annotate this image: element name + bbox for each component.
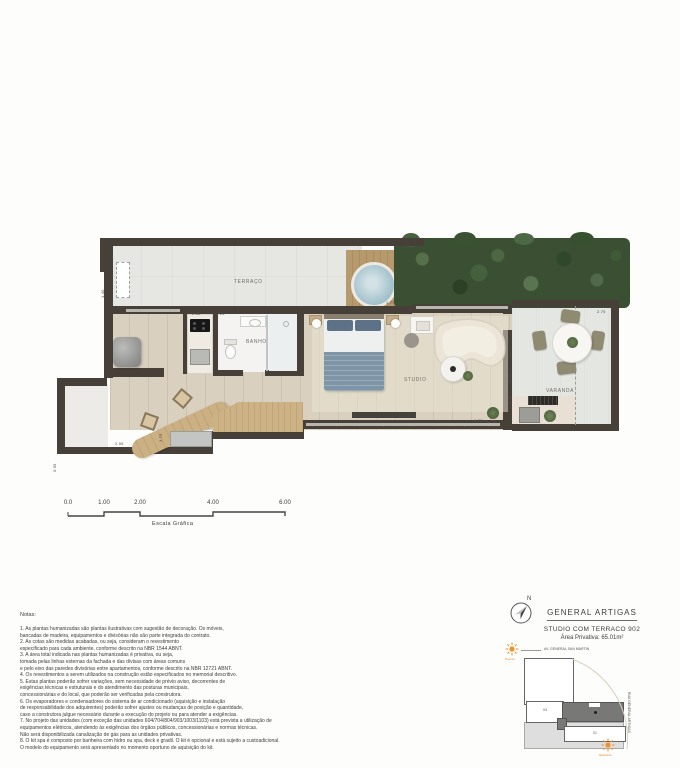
street-right-label: RUA GENERAL ARTIGAS <box>627 692 631 733</box>
scale-bar-label: Escala Gráfica <box>152 521 193 527</box>
bed <box>324 319 384 391</box>
wall-nook-bottom <box>57 447 105 454</box>
sun-west-label: Poente <box>505 657 515 661</box>
side-nook-floor <box>63 384 108 450</box>
dim-bar: 2.59 <box>115 441 124 446</box>
dining-table <box>552 323 592 363</box>
note-line: 6. Os evaporadores e condensadores do si… <box>20 699 365 706</box>
equipment-pad <box>170 431 212 447</box>
coffee-table <box>440 356 466 382</box>
dim-kitchen: 2.65 <box>192 311 201 316</box>
bed-blanket <box>324 352 384 391</box>
sun-east-icon <box>601 738 615 752</box>
kitchen-sink <box>190 349 210 365</box>
dim-nook: 0.95 <box>52 463 57 472</box>
notes-heading: Notas: <box>20 612 365 618</box>
note-line: especificado para cada ambiente, conform… <box>20 646 365 653</box>
pointer-line <box>521 650 541 651</box>
dim-balcony: 2.75 <box>597 309 606 314</box>
wall-sconce <box>391 319 400 328</box>
note-line: 4. Os revestimentos a serem utilizados n… <box>20 672 365 679</box>
wall-kitchen-bath <box>213 314 218 374</box>
keymap-arc <box>524 658 628 750</box>
title-block: GENERAL ARTIGAS STUDIO COM TERRACO 902 Á… <box>522 602 662 641</box>
grill <box>528 396 558 405</box>
note-line: O modelo do equipamento será apresentado… <box>20 745 365 752</box>
wall-balcony-bottom <box>512 424 619 431</box>
note-line: 1. As plantas humanizadas são plantas il… <box>20 626 365 633</box>
table-centerpiece <box>567 337 578 348</box>
water-heater <box>113 337 141 367</box>
note-line: 2. As cotas são medidas acabadas, ou sej… <box>20 639 365 646</box>
pouf <box>404 333 419 348</box>
wall-balcony-right <box>611 300 619 431</box>
window-glazing <box>306 423 500 426</box>
window-glazing <box>416 306 508 309</box>
notes-block: Notas: 1. As plantas humanizadas são pla… <box>20 612 365 751</box>
wall-nook-left <box>57 378 65 454</box>
hedge-blob <box>514 233 534 245</box>
dim-deck: 3.79 <box>158 433 163 442</box>
room-label-balcony: VARANDA <box>546 388 574 394</box>
plant <box>544 410 556 422</box>
wall-utility <box>104 368 164 377</box>
hedge-planting <box>394 238 630 308</box>
wall-bath-right <box>297 314 304 374</box>
terrace-floor <box>110 246 362 308</box>
dim-bath: 2.24 <box>216 311 225 316</box>
hedge-blob <box>454 232 476 246</box>
street-top-label: AV. GENERAL SAN MARTIN <box>544 647 589 651</box>
project-title: GENERAL ARTIGAS <box>547 608 637 621</box>
sun-west-icon <box>505 642 519 656</box>
wall-sconce <box>312 319 321 328</box>
dim-spa-deck: 1.77 <box>386 300 395 305</box>
pillow <box>327 320 353 331</box>
tv-console <box>352 412 416 418</box>
plant <box>487 407 499 419</box>
note-line: tomada pelas linhas externas da fachada … <box>20 659 365 666</box>
wall-top <box>104 238 424 246</box>
dining-chair <box>532 330 548 351</box>
scale-bar-line <box>64 506 290 520</box>
note-line: equipamentos elétricos, atendendo às exi… <box>20 725 365 732</box>
note-line: bancadas de madeira, equipamentos e divi… <box>20 633 365 640</box>
plant <box>463 371 473 381</box>
window-glazing <box>126 309 180 312</box>
terrace-dashed-outline <box>116 262 130 298</box>
balcony-sink <box>519 407 540 423</box>
note-line: 8. O kit spa é composto por banheira com… <box>20 738 365 745</box>
toilet-bowl <box>225 345 236 359</box>
key-map: 03 01 <box>524 658 628 750</box>
cooktop <box>190 319 210 332</box>
pillow <box>355 320 381 331</box>
dim-wall-b: 5.38 <box>507 395 512 404</box>
dim-terrace-left: 1.40 <box>100 289 105 298</box>
note-line: e pelo eixo das paredes divisórias entre… <box>20 666 365 673</box>
wall-bath-bottom-a <box>213 370 243 376</box>
note-line: caso a construtora julgue necessário dur… <box>20 712 365 719</box>
note-line: de responsabilidade dos adquirentes) pod… <box>20 705 365 712</box>
note-line: concessionárias e do local, que poderão … <box>20 692 365 699</box>
note-line: 7. No projeto das unidades (com exceção … <box>20 718 365 725</box>
note-line: Não será disponibilizada canalização de … <box>20 732 365 739</box>
wall-balcony-top <box>512 300 618 307</box>
note-line: exigências técnicas e estruturais e do a… <box>20 685 365 692</box>
shower-drain <box>283 321 289 327</box>
floorplan-sheet: TERRAÇO BANHO STUDIO VARANDA 2.65 2.24 1… <box>0 0 680 768</box>
room-label-terrace: TERRAÇO <box>234 279 263 285</box>
dining-chair <box>560 309 581 325</box>
bath-vanity <box>240 316 266 327</box>
wall-deck-bottom <box>211 431 303 439</box>
private-area: Área Privativa: 65.01m² <box>522 635 662 641</box>
note-line: 5. Estas plantas poderão sofrer variaçõe… <box>20 679 365 686</box>
room-label-studio: STUDIO <box>404 377 427 383</box>
dim-wall-a: 3.16 <box>507 373 512 382</box>
note-line: 3. A área total indicada nas plantas hum… <box>20 652 365 659</box>
room-label-bath: BANHO <box>246 339 267 345</box>
unit-title: STUDIO COM TERRACO 902 <box>522 626 662 633</box>
dim-studio-length: 9.33 <box>474 418 483 423</box>
sun-east-label: Nascente <box>599 753 612 757</box>
hedge-blob <box>570 232 594 246</box>
